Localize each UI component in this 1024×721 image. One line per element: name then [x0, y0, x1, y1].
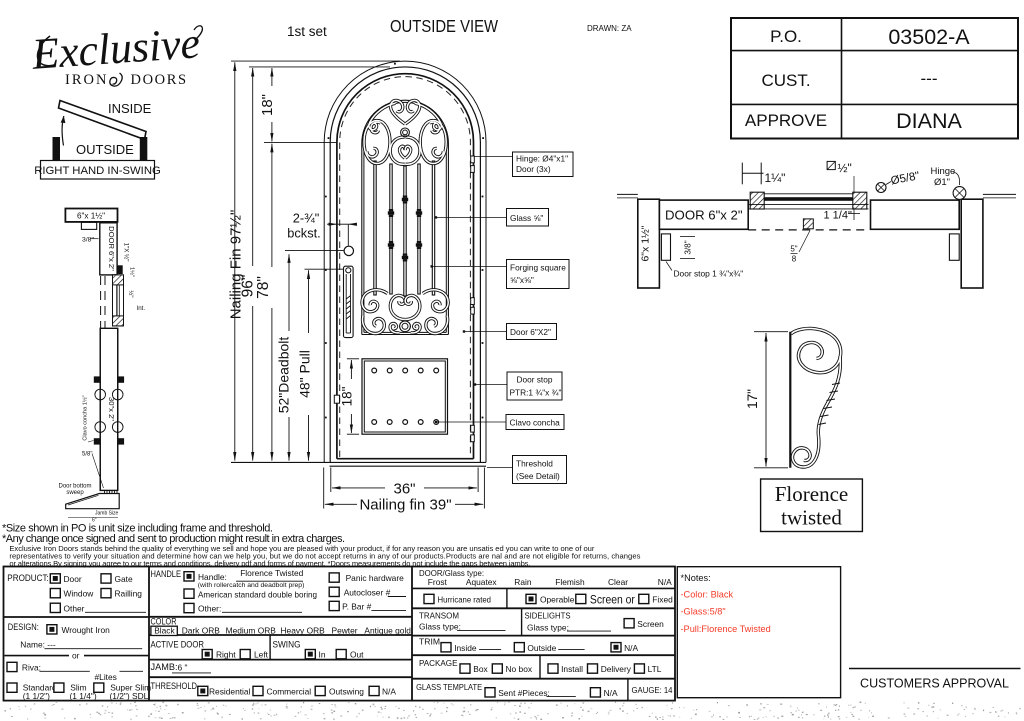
svg-text:N/A: N/A	[604, 688, 618, 698]
svg-text:Wrought Iron: Wrought Iron	[62, 625, 111, 635]
svg-text:Glass type:: Glass type:	[419, 622, 461, 632]
svg-text:sweep: sweep	[66, 490, 84, 496]
svg-text:---: ---	[921, 69, 938, 88]
svg-text:Window: Window	[64, 589, 95, 599]
svg-text:Operable: Operable	[540, 595, 575, 605]
svg-text:Antique gold: Antique gold	[364, 626, 411, 636]
svg-text:Nailing fin 39": Nailing fin 39"	[359, 497, 451, 514]
svg-text:N/A: N/A	[382, 686, 396, 696]
svg-text:Outside: Outside	[527, 643, 556, 653]
svg-text:PTR:1 ¾"x ¾": PTR:1 ¾"x ¾"	[510, 388, 562, 398]
svg-text:IRON: IRON	[65, 72, 108, 88]
svg-text:Gate: Gate	[115, 574, 133, 584]
svg-text:PRODUCT:: PRODUCT:	[7, 573, 49, 583]
svg-text:DOORS: DOORS	[131, 72, 188, 88]
svg-text:Door 6"X2": Door 6"X2"	[510, 327, 551, 337]
svg-text:Inside: Inside	[454, 643, 477, 653]
svg-text:½": ½"	[127, 290, 134, 297]
svg-text:Clavo concha: Clavo concha	[510, 418, 561, 428]
svg-text:DRAWN: ZA: DRAWN: ZA	[587, 24, 632, 33]
svg-text:Other:: Other:	[198, 604, 221, 614]
svg-text:Glass type:: Glass type:	[527, 622, 569, 632]
svg-text:Riva:: Riva:	[22, 663, 41, 673]
svg-text:THRESHOLD: THRESHOLD	[151, 681, 198, 691]
svg-text:Residential: Residential	[209, 686, 251, 696]
svg-text:(1 1/2"): (1 1/2")	[23, 691, 50, 701]
svg-text:Screen: Screen	[637, 619, 664, 629]
svg-text:INSIDE: INSIDE	[108, 101, 152, 116]
svg-text:-Glass:5/8": -Glass:5/8"	[681, 607, 726, 617]
svg-text:6 ": 6 "	[178, 663, 188, 673]
svg-text:(1/2") SDL: (1/2") SDL	[110, 691, 149, 701]
svg-text:PACKAGE: PACKAGE	[419, 658, 458, 668]
svg-text:Heavy ORB: Heavy ORB	[281, 626, 326, 636]
svg-text:Door: Door	[64, 574, 82, 584]
svg-text:OUTSIDE VIEW: OUTSIDE VIEW	[390, 16, 498, 36]
svg-text:⅝"x⅝": ⅝"x⅝"	[510, 275, 534, 285]
svg-text:18": 18"	[259, 94, 276, 116]
svg-text:Int.: Int.	[137, 305, 146, 312]
svg-text:HANDLE: HANDLE	[151, 569, 182, 579]
svg-text:Door bottom: Door bottom	[58, 484, 91, 490]
svg-text:Ø1": Ø1"	[934, 177, 950, 188]
svg-text:Florence Twisted: Florence Twisted	[240, 568, 303, 578]
svg-text:DESIGN:: DESIGN:	[8, 622, 39, 632]
svg-text:No box: No box	[506, 664, 533, 674]
svg-text:Flemish: Flemish	[555, 577, 585, 587]
svg-text:03502-A: 03502-A	[888, 25, 970, 49]
svg-text:Clear: Clear	[608, 577, 628, 587]
svg-text:DOOR 6"x 2": DOOR 6"x 2"	[665, 208, 743, 223]
svg-text:In: In	[319, 650, 326, 660]
svg-text:N/A: N/A	[658, 577, 672, 587]
svg-text:-Color: Black: -Color: Black	[681, 590, 734, 600]
svg-text:GLASS TEMPLATE: GLASS TEMPLATE	[416, 682, 482, 692]
svg-text:Commercial: Commercial	[267, 686, 312, 696]
svg-text:Name: ---: Name: ---	[20, 639, 56, 649]
svg-text:GAUGE: 14: GAUGE: 14	[632, 685, 673, 695]
svg-text:DOOR 6"x 2": DOOR 6"x 2"	[107, 226, 116, 271]
svg-text:Nailing Fin 97½": Nailing Fin 97½"	[228, 210, 245, 320]
svg-text:#Lites: #Lites	[95, 672, 117, 682]
svg-text:78": 78"	[255, 276, 272, 299]
svg-text:bckst.: bckst.	[287, 226, 320, 241]
svg-text:1"X ½": 1"X ½"	[123, 243, 130, 262]
svg-text:*Any change once signed and se: *Any change once signed and sent to prod…	[2, 533, 345, 545]
svg-text:6"x 1½": 6"x 1½"	[640, 225, 652, 261]
svg-text:Handle:: Handle:	[198, 572, 227, 582]
svg-text:(See Detail): (See Detail)	[516, 471, 560, 481]
svg-text:JAMB:: JAMB:	[151, 662, 178, 672]
svg-text:5": 5"	[790, 245, 797, 254]
svg-text:Box: Box	[473, 664, 488, 674]
svg-text:Door stop: Door stop	[517, 375, 553, 385]
svg-text:Delivery: Delivery	[601, 664, 632, 674]
svg-text:Hinge: Ø4"x1": Hinge: Ø4"x1"	[516, 154, 568, 164]
svg-text:30"x 2": 30"x 2"	[107, 397, 116, 421]
svg-text:Clavo concha 1½": Clavo concha 1½"	[82, 395, 89, 440]
svg-text:Screen or: Screen or	[590, 593, 635, 607]
svg-text:(with rollercatch and deadbolt: (with rollercatch and deadbolt prep)	[198, 582, 305, 589]
svg-text:Aquatex: Aquatex	[466, 577, 498, 587]
svg-text:Panic hardware: Panic hardware	[346, 573, 405, 583]
svg-text:ACTIVE DOOR: ACTIVE DOOR	[151, 640, 205, 650]
svg-text:Jamb Size: Jamb Size	[95, 511, 119, 517]
svg-text:(1 1/4"): (1 1/4")	[70, 691, 97, 701]
svg-text:N/A: N/A	[624, 643, 638, 653]
svg-text:Left: Left	[254, 650, 269, 660]
svg-text:8: 8	[792, 255, 797, 264]
svg-text:or: or	[72, 651, 80, 661]
svg-text:TRIM: TRIM	[419, 636, 440, 646]
svg-text:SIDELIGHTS: SIDELIGHTS	[525, 610, 571, 620]
svg-text:Railling: Railling	[115, 589, 143, 599]
svg-text:5/8": 5/8"	[82, 452, 92, 458]
svg-text:Pewter: Pewter	[332, 626, 358, 636]
svg-text:1st set: 1st set	[287, 24, 327, 39]
svg-text:48" Pull: 48" Pull	[297, 350, 313, 398]
svg-text:CUST.: CUST.	[761, 71, 810, 90]
svg-text:LTL: LTL	[648, 664, 662, 674]
svg-text:TRANSOM: TRANSOM	[419, 610, 459, 620]
svg-text:Medium ORB: Medium ORB	[226, 626, 277, 636]
svg-text:CUSTOMERS APPROVAL: CUSTOMERS APPROVAL	[860, 677, 1009, 691]
svg-text:Forging square: Forging square	[510, 263, 566, 273]
svg-text:Outswing: Outswing	[329, 686, 364, 696]
svg-text:American standard double borin: American standard double boring	[198, 589, 317, 599]
svg-text:Rain: Rain	[514, 577, 532, 587]
svg-text:Florence: Florence	[775, 482, 848, 506]
svg-text:36": 36"	[393, 481, 415, 498]
svg-text:Hinge: Hinge	[931, 166, 956, 177]
svg-text:2-¾": 2-¾"	[293, 211, 320, 226]
svg-text:6"x 1½": 6"x 1½"	[77, 211, 105, 220]
svg-text:Frost: Frost	[428, 577, 448, 587]
svg-text:Sent #Pieces:: Sent #Pieces:	[498, 688, 550, 698]
svg-text:Door (3x): Door (3x)	[516, 164, 551, 174]
svg-text:Door stop 1 ¾"x¾": Door stop 1 ¾"x¾"	[674, 269, 744, 279]
svg-text:DIANA: DIANA	[896, 109, 962, 133]
svg-text:Black: Black	[154, 626, 175, 636]
svg-text:1 1/4": 1 1/4"	[824, 210, 852, 222]
svg-text:APPROVE: APPROVE	[745, 111, 827, 130]
svg-text:Fixed: Fixed	[652, 595, 673, 605]
svg-text:RIGHT HAND IN-SWING: RIGHT HAND IN-SWING	[34, 165, 161, 177]
svg-text:3/8": 3/8"	[82, 237, 94, 244]
svg-text:Other: Other	[64, 603, 85, 613]
svg-text:17": 17"	[745, 389, 760, 409]
svg-text:½": ½"	[838, 161, 852, 175]
svg-text:Hurricane rated: Hurricane rated	[438, 595, 492, 605]
svg-text:1¼": 1¼"	[765, 171, 786, 185]
svg-text:Threshold: Threshold	[516, 459, 553, 469]
svg-text:twisted: twisted	[781, 506, 842, 530]
svg-text:3/8": 3/8"	[684, 240, 693, 254]
svg-text:SWING: SWING	[273, 640, 301, 650]
svg-text:Glass ⅝": Glass ⅝"	[510, 213, 543, 223]
svg-text:96": 96"	[240, 275, 257, 298]
svg-text:1½": 1½"	[129, 267, 136, 277]
svg-text:Install: Install	[561, 664, 583, 674]
svg-text:*Notes:: *Notes:	[681, 573, 711, 583]
svg-text:Right: Right	[216, 650, 236, 660]
svg-text:P.O.: P.O.	[770, 27, 802, 46]
svg-text:Autocloser #: Autocloser #	[344, 587, 391, 597]
svg-text:OUTSIDE: OUTSIDE	[76, 142, 134, 157]
svg-text:Out: Out	[350, 650, 364, 660]
svg-text:52"Deadbolt: 52"Deadbolt	[276, 337, 292, 414]
svg-text:Dark ORB: Dark ORB	[182, 626, 221, 636]
svg-text:18": 18"	[340, 386, 355, 406]
svg-text:-Pull:Florence Twisted: -Pull:Florence Twisted	[681, 624, 771, 634]
svg-text:P. Bar #: P. Bar #	[342, 602, 372, 612]
